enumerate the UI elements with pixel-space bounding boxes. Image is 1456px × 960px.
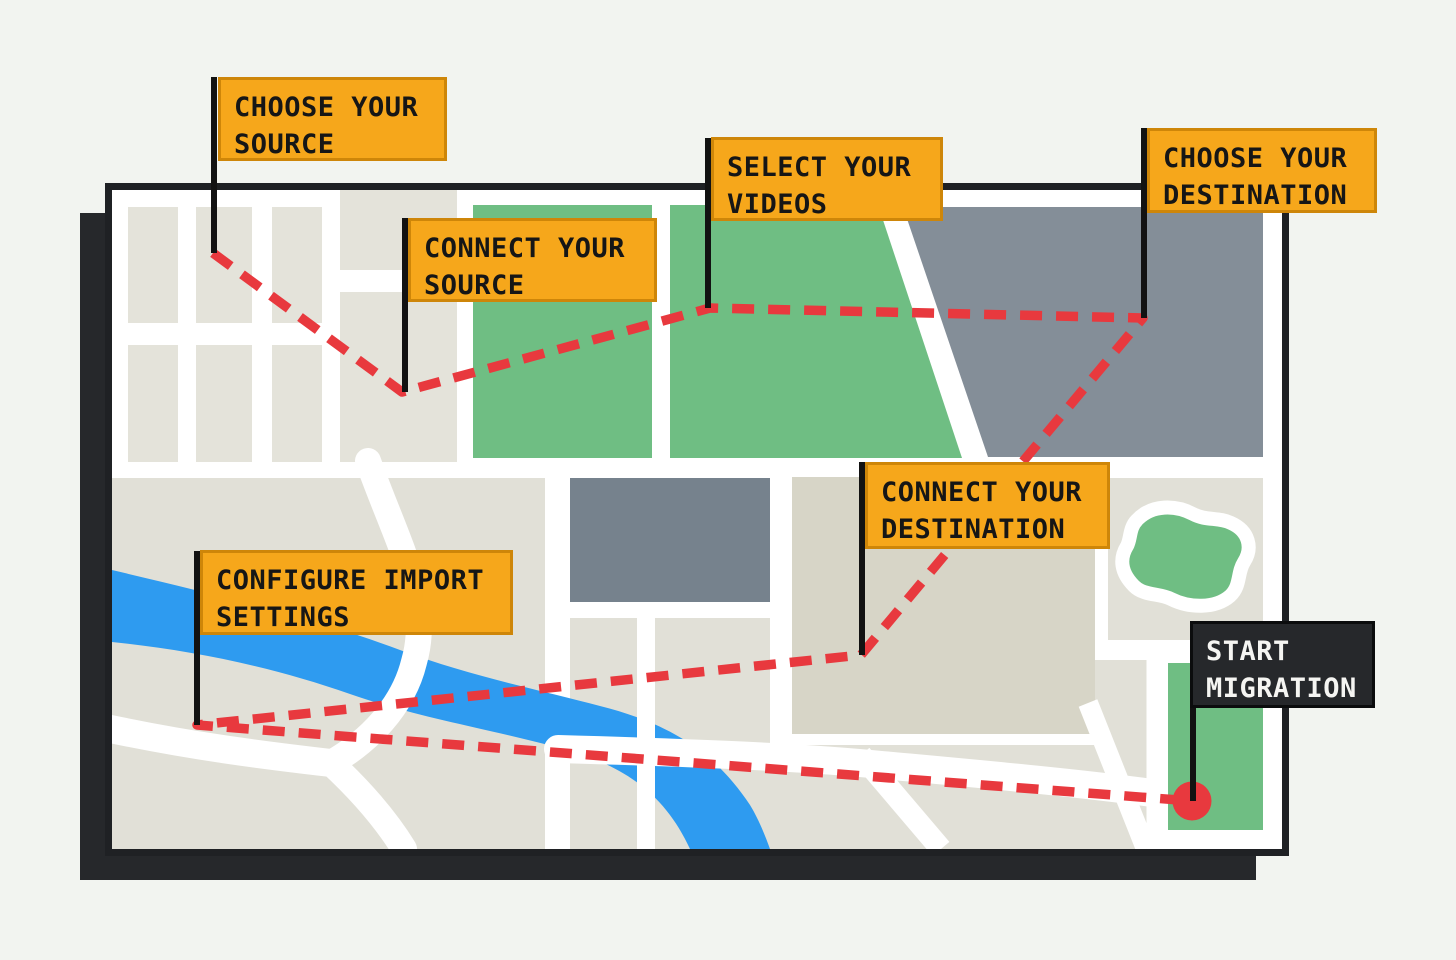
flag-label: CHOOSE YOUR: [1163, 140, 1374, 177]
flag-connect-destination: CONNECT YOUR DESTINATION: [865, 462, 1110, 549]
flag-choose-source: CHOOSE YOUR SOURCE: [218, 77, 447, 161]
flag-start-migration: START MIGRATION: [1190, 621, 1375, 708]
flag-label: SOURCE: [234, 126, 444, 163]
flag-connect-source: CONNECT YOUR SOURCE: [408, 218, 657, 302]
flag-label: MIGRATION: [1206, 670, 1372, 707]
pond: [1122, 508, 1248, 606]
flag-label: SOURCE: [424, 267, 654, 304]
flag-label: CONFIGURE IMPORT: [216, 562, 510, 599]
migration-map-illustration: CHOOSE YOUR SOURCE CONNECT YOUR SOURCE S…: [0, 0, 1456, 960]
flag-configure-import: CONFIGURE IMPORT SETTINGS: [200, 550, 513, 635]
building-slate-mid: [570, 478, 770, 602]
flag-label: DESTINATION: [881, 511, 1107, 548]
flag-label: VIDEOS: [727, 186, 940, 223]
flag-label: CHOOSE YOUR: [234, 89, 444, 126]
flag-select-videos: SELECT YOUR VIDEOS: [711, 137, 943, 221]
flag-label: SETTINGS: [216, 599, 510, 636]
flag-label: CONNECT YOUR: [881, 474, 1107, 511]
flag-choose-destination: CHOOSE YOUR DESTINATION: [1147, 128, 1377, 213]
flag-label: START: [1206, 633, 1372, 670]
flag-label: SELECT YOUR: [727, 149, 940, 186]
flag-label: DESTINATION: [1163, 177, 1374, 214]
flag-label: CONNECT YOUR: [424, 230, 654, 267]
